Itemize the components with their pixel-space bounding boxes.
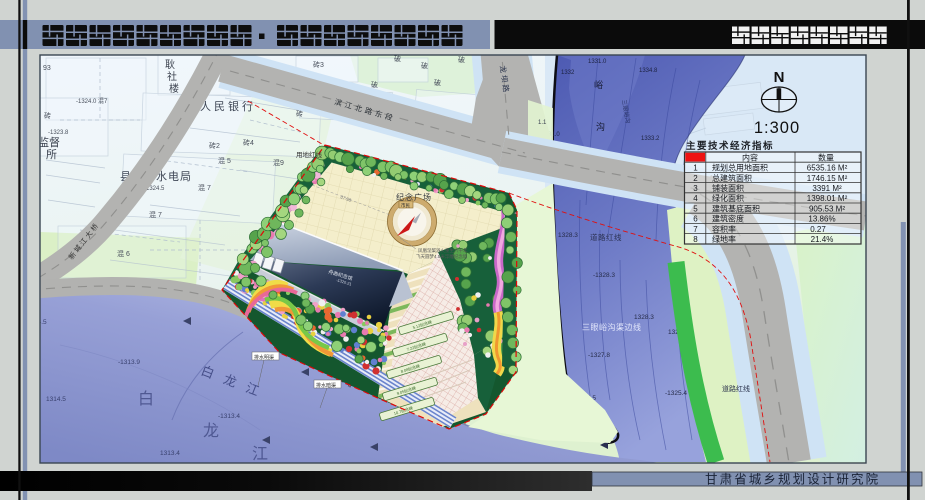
- svg-text:-1323.8: -1323.8: [48, 130, 69, 136]
- svg-text:1334.8: 1334.8: [639, 68, 658, 74]
- svg-text:飞天圆梦4.5米浮雕纪念墙: 飞天圆梦4.5米浮雕纪念墙: [416, 253, 468, 260]
- svg-text:容积率: 容积率: [712, 224, 736, 234]
- svg-text:1: 1: [693, 164, 698, 173]
- svg-text:1332: 1332: [561, 70, 575, 76]
- svg-text:混 5: 混 5: [218, 156, 231, 165]
- svg-text:混9: 混9: [273, 158, 284, 167]
- svg-text:主要技术经济指标: 主要技术经济指标: [686, 140, 774, 152]
- svg-text:龙: 龙: [203, 422, 219, 440]
- svg-text:数量: 数量: [818, 152, 834, 162]
- svg-text:峪: 峪: [594, 80, 603, 90]
- svg-text:1746.15 M²: 1746.15 M²: [807, 174, 848, 183]
- svg-text:1.1: 1.1: [538, 120, 547, 126]
- svg-text:总建筑面积: 总建筑面积: [712, 173, 752, 183]
- svg-text:排水暗渠: 排水暗渠: [316, 382, 336, 389]
- svg-text:-1313.9: -1313.9: [118, 359, 140, 366]
- svg-text:93: 93: [43, 65, 51, 72]
- svg-text:1:300: 1:300: [754, 119, 800, 137]
- svg-text:内容: 内容: [742, 152, 758, 162]
- svg-text:混 7: 混 7: [149, 210, 162, 219]
- svg-text:所: 所: [46, 148, 57, 161]
- svg-text:1398.01 M²: 1398.01 M²: [807, 194, 848, 203]
- svg-text:道路红线: 道路红线: [590, 232, 622, 242]
- svg-text:砖2: 砖2: [209, 141, 220, 150]
- svg-text:社: 社: [167, 70, 177, 83]
- svg-text:6: 6: [693, 215, 698, 224]
- svg-text:白: 白: [138, 390, 154, 408]
- svg-text:破: 破: [421, 61, 428, 70]
- svg-text:绿化面积: 绿化面积: [712, 193, 744, 203]
- svg-text:甘肃省城乡规划设计研究院: 甘肃省城乡规划设计研究院: [705, 472, 880, 487]
- svg-text:三眼峪沟渠边线: 三眼峪沟渠边线: [582, 322, 642, 332]
- svg-text:混 6: 混 6: [117, 249, 130, 258]
- svg-text:凤凰涅槃浴火重生六十年: 凤凰涅槃浴火重生六十年: [418, 247, 468, 254]
- svg-text:13.86%: 13.86%: [808, 215, 835, 224]
- svg-text:1328.3: 1328.3: [634, 314, 654, 321]
- svg-text:-1324.0 混7: -1324.0 混7: [76, 97, 108, 105]
- svg-text:-1313.4: -1313.4: [218, 413, 240, 420]
- svg-text:建筑密度: 建筑密度: [712, 214, 744, 224]
- svg-text:楼: 楼: [169, 82, 179, 95]
- svg-text:2: 2: [693, 174, 698, 183]
- svg-text:规划总用地面积: 规划总用地面积: [712, 163, 768, 173]
- svg-text:-1325.4: -1325.4: [665, 390, 687, 397]
- svg-text:0.27: 0.27: [810, 225, 826, 234]
- svg-text:排水明渠: 排水明渠: [254, 354, 274, 361]
- svg-text:1333.2: 1333.2: [641, 136, 660, 142]
- svg-text:破: 破: [371, 80, 378, 89]
- svg-text:1331.0: 1331.0: [588, 59, 607, 65]
- svg-text:破: 破: [458, 55, 465, 64]
- svg-text:纪念广场: 纪念广场: [396, 192, 432, 202]
- svg-text:1328.3: 1328.3: [558, 232, 578, 239]
- svg-text:砖3: 砖3: [313, 60, 324, 69]
- svg-text:N: N: [774, 69, 785, 86]
- svg-text:建筑基底面积: 建筑基底面积: [712, 203, 760, 213]
- svg-text:江: 江: [252, 445, 268, 463]
- svg-text:3391 M²: 3391 M²: [812, 184, 842, 193]
- svg-text:-1328.3: -1328.3: [593, 272, 615, 279]
- svg-text:监督: 监督: [38, 135, 60, 149]
- svg-text:市民: 市民: [401, 202, 410, 209]
- svg-text:耿: 耿: [165, 58, 175, 71]
- svg-text:绿地率: 绿地率: [712, 234, 736, 244]
- svg-text:7: 7: [693, 225, 698, 234]
- svg-text:21.4%: 21.4%: [811, 235, 834, 244]
- svg-text:905.53 M²: 905.53 M²: [809, 204, 845, 213]
- svg-text:5: 5: [693, 204, 698, 213]
- svg-text:用地红线: 用地红线: [296, 150, 323, 159]
- svg-text:3: 3: [693, 184, 698, 193]
- svg-text:混 7: 混 7: [198, 183, 211, 192]
- svg-text:4: 4: [693, 194, 698, 203]
- svg-text:1313.4: 1313.4: [160, 450, 180, 457]
- svg-text:8: 8: [693, 235, 698, 244]
- svg-text:铺装面积: 铺装面积: [712, 183, 744, 193]
- svg-text:道路红线: 道路红线: [722, 384, 750, 393]
- svg-text:砖: 砖: [44, 111, 51, 120]
- svg-text:-1327.8: -1327.8: [588, 352, 610, 359]
- svg-text:1314.5: 1314.5: [46, 396, 66, 403]
- svg-text:沟: 沟: [596, 121, 605, 132]
- svg-text:砖4: 砖4: [243, 138, 254, 147]
- svg-text:6535.16 M²: 6535.16 M²: [807, 164, 848, 173]
- svg-text:破: 破: [434, 78, 441, 87]
